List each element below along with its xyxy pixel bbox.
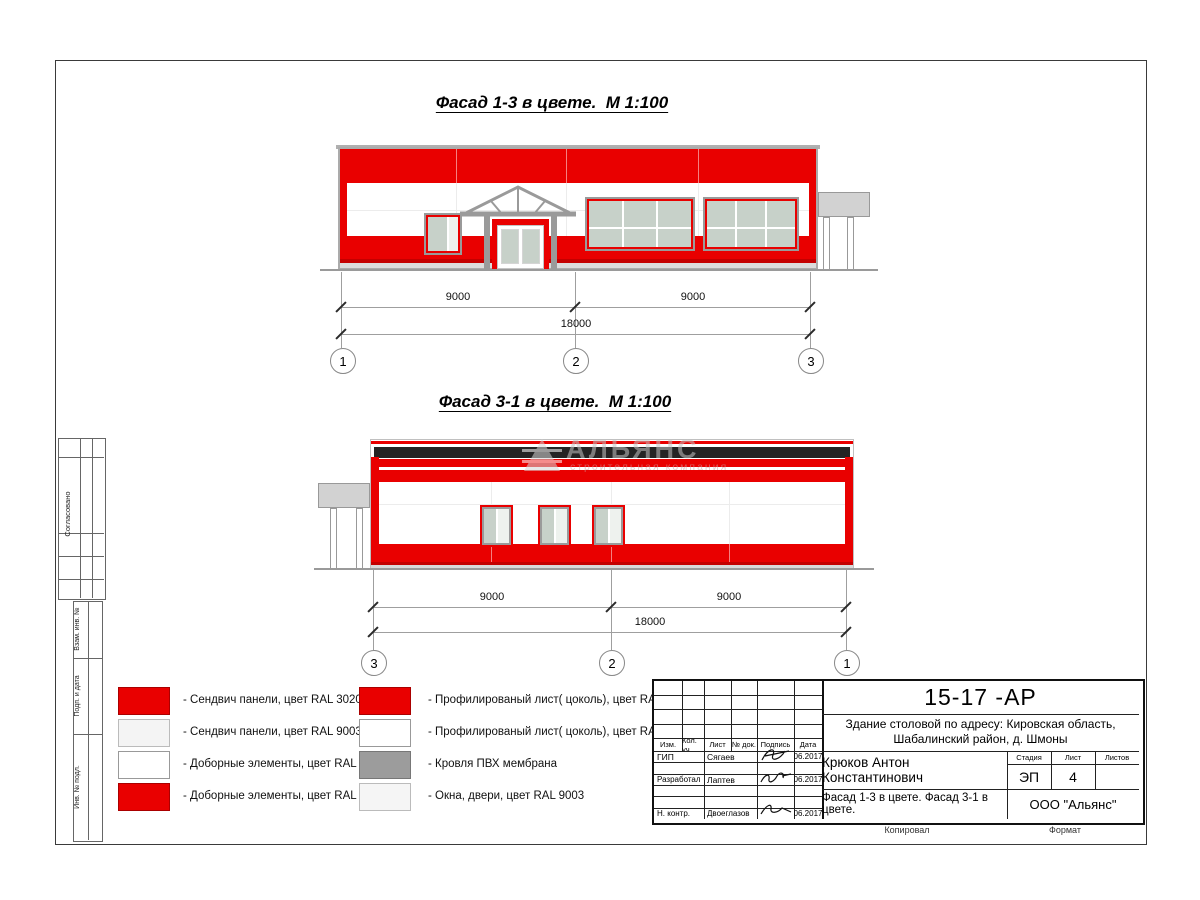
tb-sheet-title: Фасад 1-3 в цвете. Фасад 3-1 в цвете. <box>822 789 1007 819</box>
extension-line <box>575 272 576 348</box>
extension-line <box>373 570 374 650</box>
door-leaf-glass <box>522 229 540 264</box>
alliance-logo-icon <box>522 437 562 473</box>
footer-copied-label: Копировал <box>857 825 957 835</box>
door-leaf-glass <box>501 229 519 264</box>
extension-line <box>341 272 342 348</box>
approval-table-line <box>58 457 104 458</box>
approval-table-line <box>58 579 104 580</box>
dim-9000-right: 9000 <box>679 591 779 605</box>
sandwich-band-red-top <box>340 149 816 183</box>
corner-trim-right <box>809 149 816 259</box>
glass-pane <box>596 509 608 543</box>
tb-project-line2: Шабалинский район, д. Шмоны <box>822 732 1139 747</box>
tb-date-gip: 06.2017 <box>794 751 822 762</box>
corner-trim-right <box>845 457 853 562</box>
canopy-leg <box>356 508 363 570</box>
panel-joint <box>698 183 699 236</box>
tb-role-developer: Разработал <box>654 774 704 785</box>
glass-pane <box>556 509 568 543</box>
dim-9000-left: 9000 <box>408 291 508 305</box>
extension-line <box>810 272 811 348</box>
panel-joint <box>729 482 730 544</box>
canopy-slab <box>318 483 370 508</box>
canopy-leg <box>330 508 337 570</box>
large-window-glass <box>707 201 795 247</box>
legend-swatch <box>118 751 170 779</box>
legend-swatch <box>359 751 411 779</box>
watermark-tagline: строительная компания <box>570 461 728 473</box>
signature-gip <box>758 745 794 765</box>
panel-joint <box>456 149 457 183</box>
small-window <box>424 213 462 255</box>
facade-13-title: Фасад 1-3 в цвете. М 1:100 <box>427 93 677 113</box>
rear-window-2 <box>538 505 571 547</box>
glass-pane <box>589 229 622 247</box>
dim-9000-left: 9000 <box>442 591 542 605</box>
glass-pane <box>707 229 735 247</box>
tb-chief-name: Крюков Антон Константинович <box>822 751 1007 789</box>
glass-pane <box>498 509 510 543</box>
tb-header-list: Лист <box>704 738 731 751</box>
legend-label: - Окна, двери, цвет RAL 9003 <box>428 789 584 803</box>
dimension-line <box>373 632 847 633</box>
margin-label-vzam: Взам. инв. № <box>74 602 86 656</box>
glass-pane <box>737 229 765 247</box>
margin-label-inv: Инв. № подл. <box>74 752 86 822</box>
legend-swatch <box>118 783 170 811</box>
glass-pane <box>767 229 795 247</box>
ground-line <box>320 269 878 271</box>
porch-truss <box>460 182 576 218</box>
tb-sheet-label: Лист <box>1051 751 1095 764</box>
tb-line <box>654 695 822 696</box>
glass-pane <box>610 509 622 543</box>
legend-label: - Сендвич панели, цвет RAL 9003 <box>183 725 362 739</box>
axis-marker-2: 2 <box>563 348 589 374</box>
large-window-2 <box>703 197 799 251</box>
glass-pane <box>624 229 657 247</box>
approval-table-line <box>92 438 93 598</box>
legend-label: - Доборные элементы, цвет RAL 3020 <box>183 789 385 803</box>
tb-header-doc: № док. <box>731 738 757 751</box>
dim-9000-right: 9000 <box>643 291 743 305</box>
canopy-leg <box>823 217 830 271</box>
approval-table-line <box>58 556 104 557</box>
approval-table-line <box>80 438 81 598</box>
corner-trim-left <box>340 149 347 259</box>
margin-label-podp: Подп. и дата <box>74 661 86 731</box>
inv-box-line <box>88 734 89 840</box>
dim-18000: 18000 <box>600 616 700 630</box>
legend-label: - Кровля ПВХ мембрана <box>428 757 557 771</box>
dim-18000: 18000 <box>526 318 626 332</box>
tb-doc-number: 15-17 -АР <box>822 681 1139 714</box>
tb-role-gip: ГИП <box>654 751 704 762</box>
plinth-trim <box>340 263 816 268</box>
glass-pane <box>484 509 496 543</box>
legend-swatch <box>359 687 411 715</box>
extension-line <box>611 570 612 650</box>
tb-line <box>654 724 822 725</box>
glass-pane <box>658 201 691 227</box>
axis-marker-2: 2 <box>599 650 625 676</box>
ground-line <box>314 568 874 570</box>
signature-developer <box>758 769 794 787</box>
porch-post-right <box>551 216 557 269</box>
glass-pane <box>658 229 691 247</box>
rear-window-glass <box>542 509 567 543</box>
legend-swatch <box>359 719 411 747</box>
facade-31-title: Фасад 3-1 в цвете. М 1:100 <box>430 392 680 412</box>
canopy-slab <box>818 192 870 217</box>
tb-sheet-value: 4 <box>1051 764 1095 789</box>
tb-sheets-label: Листов <box>1095 751 1139 764</box>
small-window-glass <box>428 217 458 251</box>
rear-window-3 <box>592 505 625 547</box>
tb-name-developer: Лаптев <box>704 774 757 785</box>
margin-label-approved: Согласовано <box>63 474 75 554</box>
footer-format-label: Формат <box>1015 825 1115 835</box>
tb-project-name: Здание столовой по адресу: Кировская обл… <box>822 717 1139 751</box>
panel-joint <box>729 544 730 562</box>
tb-stage-label: Стадия <box>1007 751 1051 764</box>
legend-label: - Сендвич панели, цвет RAL 3020 <box>183 693 362 707</box>
porch-post-left <box>484 216 490 269</box>
axis-marker-1: 1 <box>330 348 356 374</box>
glass-pane <box>707 201 735 227</box>
tb-role-ncontrol: Н. контр. <box>654 808 704 819</box>
legend-swatch <box>359 783 411 811</box>
glass-pane <box>624 201 657 227</box>
vzam-box-line <box>88 601 89 658</box>
legend-label: - Доборные элементы, цвет RAL 9003 <box>183 757 385 771</box>
title-block: Изм. Кол. уч. Лист № док. Подпись Дата Г… <box>652 679 1145 825</box>
axis-marker-3: 3 <box>798 348 824 374</box>
tb-header-izm: Изм. <box>654 738 682 751</box>
axis-marker-3: 3 <box>361 650 387 676</box>
tb-sheets-value <box>1095 764 1139 789</box>
axis-marker-1: 1 <box>834 650 860 676</box>
glass-pane <box>428 217 447 251</box>
panel-joint <box>698 149 699 183</box>
large-window-glass <box>589 201 691 247</box>
dimension-line <box>341 334 811 335</box>
glass-pane <box>542 509 554 543</box>
tb-line <box>822 714 1139 715</box>
tb-line <box>654 796 822 797</box>
legend-swatch <box>118 719 170 747</box>
panel-joint <box>566 149 567 183</box>
extension-line <box>846 570 847 650</box>
drawing-sheet: Согласовано Взам. инв. № Подп. и дата Ин… <box>0 0 1200 900</box>
signature-ncontrol <box>758 800 794 819</box>
tb-name-gip: Сягаев <box>704 751 757 762</box>
tb-header-kol: Кол. уч. <box>682 738 704 751</box>
glass-pane <box>589 201 622 227</box>
legend-swatch <box>118 687 170 715</box>
canopy-leg <box>847 217 854 271</box>
large-window-1 <box>585 197 695 251</box>
tb-line <box>654 785 822 786</box>
rear-window-glass <box>596 509 621 543</box>
glass-pane <box>737 201 765 227</box>
tb-line <box>654 709 822 710</box>
glass-pane <box>449 217 458 251</box>
corner-trim-left <box>371 457 379 562</box>
tb-line <box>654 762 822 763</box>
tb-company: ООО "Альянс" <box>1007 789 1139 819</box>
tb-date-developer: 06.2017 <box>794 774 822 785</box>
rear-window-glass <box>484 509 509 543</box>
rear-window-1 <box>480 505 513 547</box>
podp-box-line <box>88 658 89 734</box>
tb-stage-value: ЭП <box>1007 764 1051 789</box>
tb-name-ncontrol: Двоеглазов <box>704 808 757 819</box>
tb-project-line1: Здание столовой по адресу: Кировская обл… <box>822 717 1139 732</box>
tb-date-ncontrol: 06.2017 <box>794 808 822 819</box>
glass-pane <box>767 201 795 227</box>
tb-header-date: Дата <box>794 738 822 751</box>
